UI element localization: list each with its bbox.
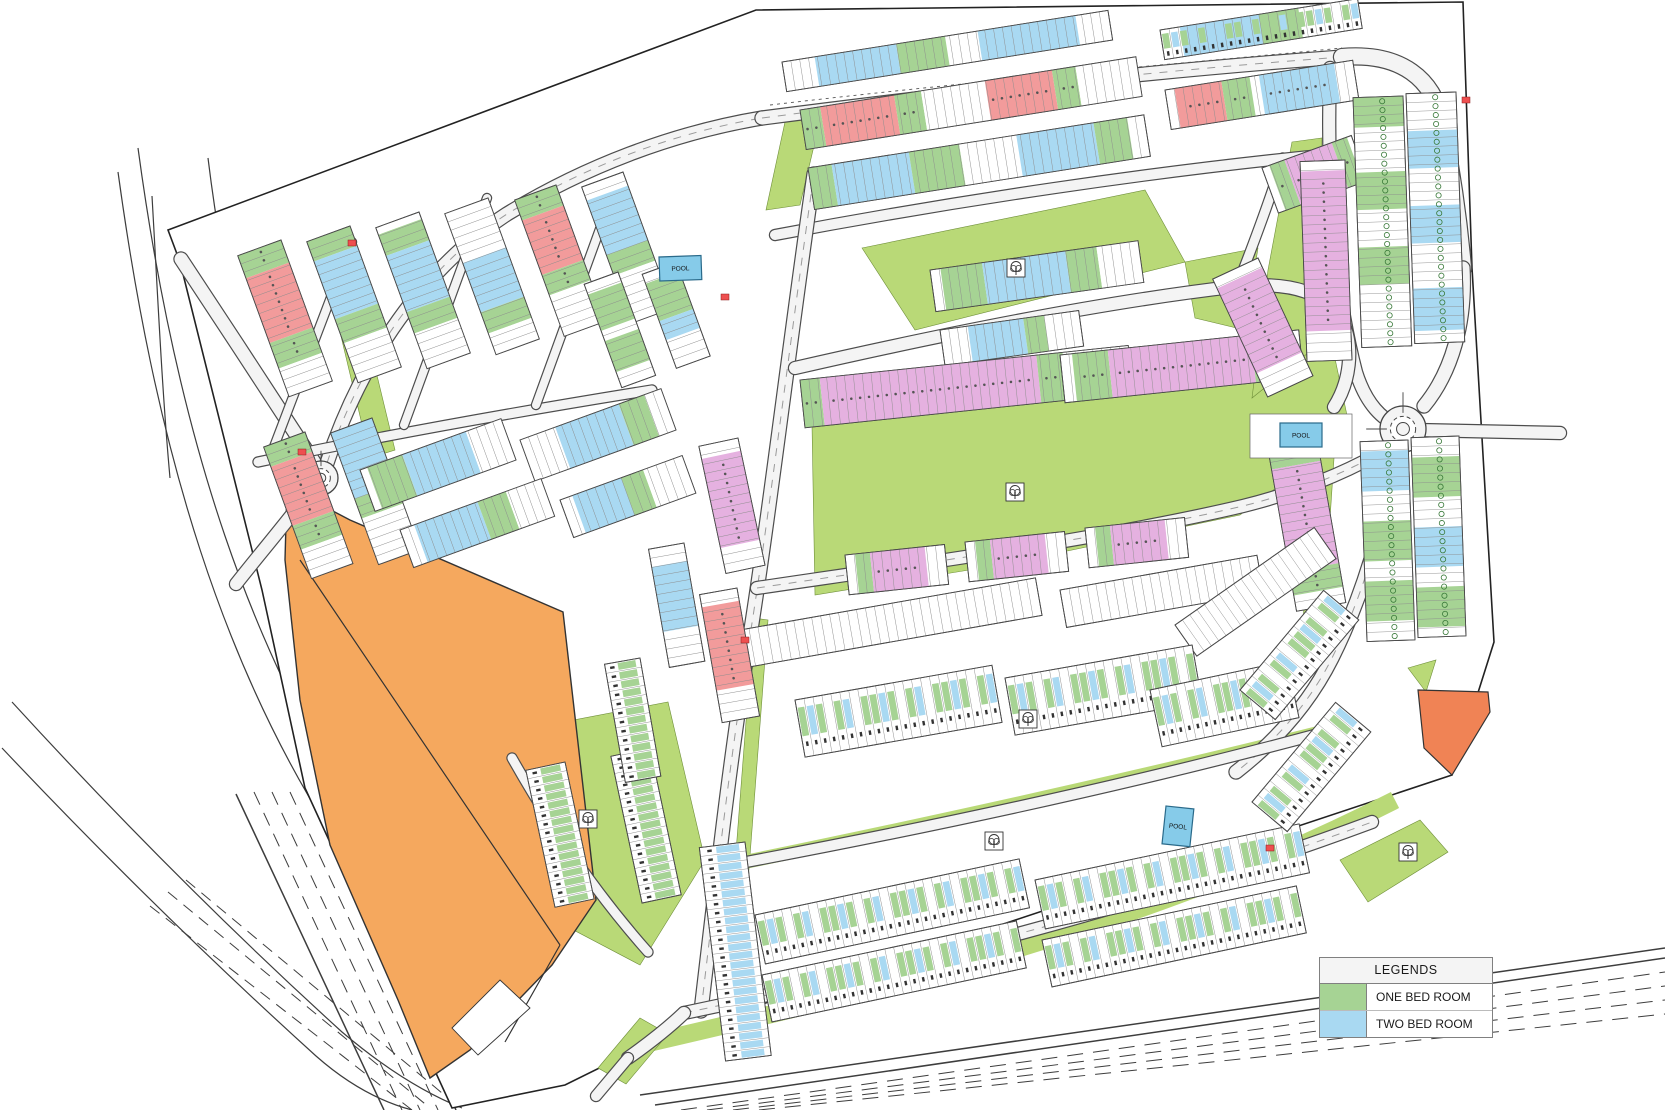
tree-icon	[579, 810, 597, 828]
pool-label: POOL	[671, 265, 690, 273]
master-plan-drawing: POOLPOOLPOOL	[0, 0, 1665, 1110]
pool-bottom: POOL	[1162, 806, 1194, 847]
entrance-marker	[1266, 845, 1274, 851]
tree-icon	[1006, 483, 1024, 501]
legend-label-one-bed-room: ONE BED ROOM	[1367, 984, 1492, 1010]
pool-label: POOL	[1292, 432, 1310, 439]
legend-label-two-bed-room: TWO BED ROOM	[1367, 1011, 1492, 1037]
legend-box: LEGENDS ONE BED ROOM TWO BED ROOM	[1319, 957, 1493, 1038]
pool-top-left: POOL	[659, 256, 702, 281]
entrance-marker	[1462, 97, 1470, 103]
legend-swatch-one-bed-room	[1320, 984, 1367, 1010]
legend-row-two-bed: TWO BED ROOM	[1320, 1011, 1492, 1037]
tree-icon	[1399, 843, 1417, 861]
tree-icon	[985, 832, 1003, 850]
legend-title: LEGENDS	[1320, 958, 1492, 984]
entrance-marker	[721, 294, 729, 300]
tree-icon	[1007, 259, 1025, 277]
housing-block	[1353, 96, 1412, 348]
pool-right: POOL	[1280, 423, 1322, 447]
housing-block	[1360, 440, 1415, 642]
housing-block	[1411, 436, 1466, 638]
housing-block	[1300, 160, 1352, 361]
tree-icon	[1019, 710, 1037, 728]
housing-block	[1406, 92, 1465, 344]
entrance-marker	[298, 449, 306, 455]
entrance-marker	[741, 637, 749, 643]
entrance-marker	[348, 240, 356, 246]
legend-swatch-two-bed-room	[1320, 1011, 1367, 1037]
site-plan-page: POOLPOOLPOOL LEGENDS ONE BED ROOM TWO BE…	[0, 0, 1665, 1110]
legend-row-one-bed: ONE BED ROOM	[1320, 984, 1492, 1011]
